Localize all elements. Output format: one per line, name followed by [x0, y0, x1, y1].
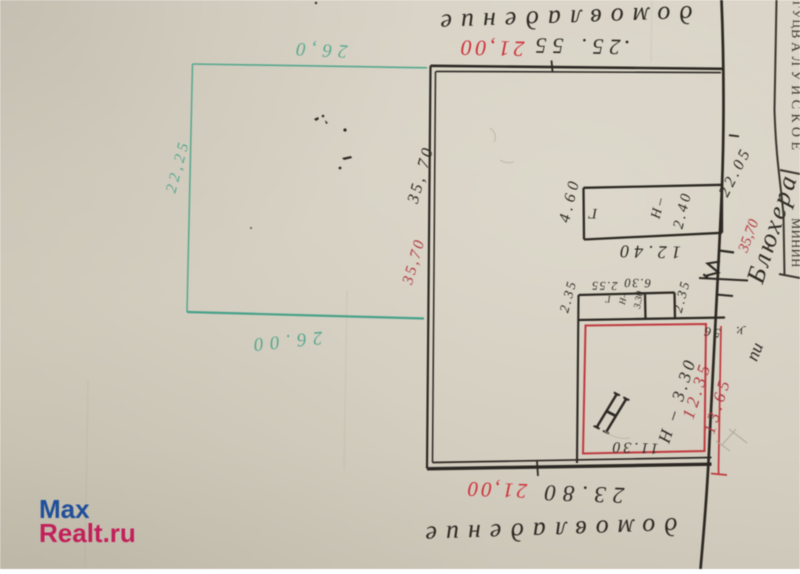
svg-text:21,00: 21,00 — [464, 477, 527, 503]
svg-text:11.30: 11.30 — [609, 438, 658, 457]
svg-text:25. 55: 25. 55 — [529, 33, 620, 60]
svg-text:56: 56 — [701, 324, 722, 341]
svg-text:2.55: 2.55 — [590, 279, 617, 293]
svg-text:26,0: 26,0 — [290, 38, 348, 62]
svg-text:Г: Г — [587, 205, 598, 221]
svg-text:21,00: 21,00 — [457, 35, 524, 61]
svg-text:МИНИН: МИНИН — [789, 218, 800, 268]
svg-text:ВАЛУЙСКОЕ: ВАЛУЙСКОЕ — [788, 29, 800, 155]
svg-text:23.80: 23.80 — [537, 480, 625, 508]
svg-text:6.30: 6.30 — [623, 276, 651, 290]
svg-text:Realt.ru: Realt.ru — [39, 518, 136, 548]
svg-text:12.40: 12.40 — [615, 241, 681, 262]
svg-text:Г: Г — [605, 294, 612, 304]
svg-text:ГУЦ: ГУЦ — [790, 1, 800, 30]
